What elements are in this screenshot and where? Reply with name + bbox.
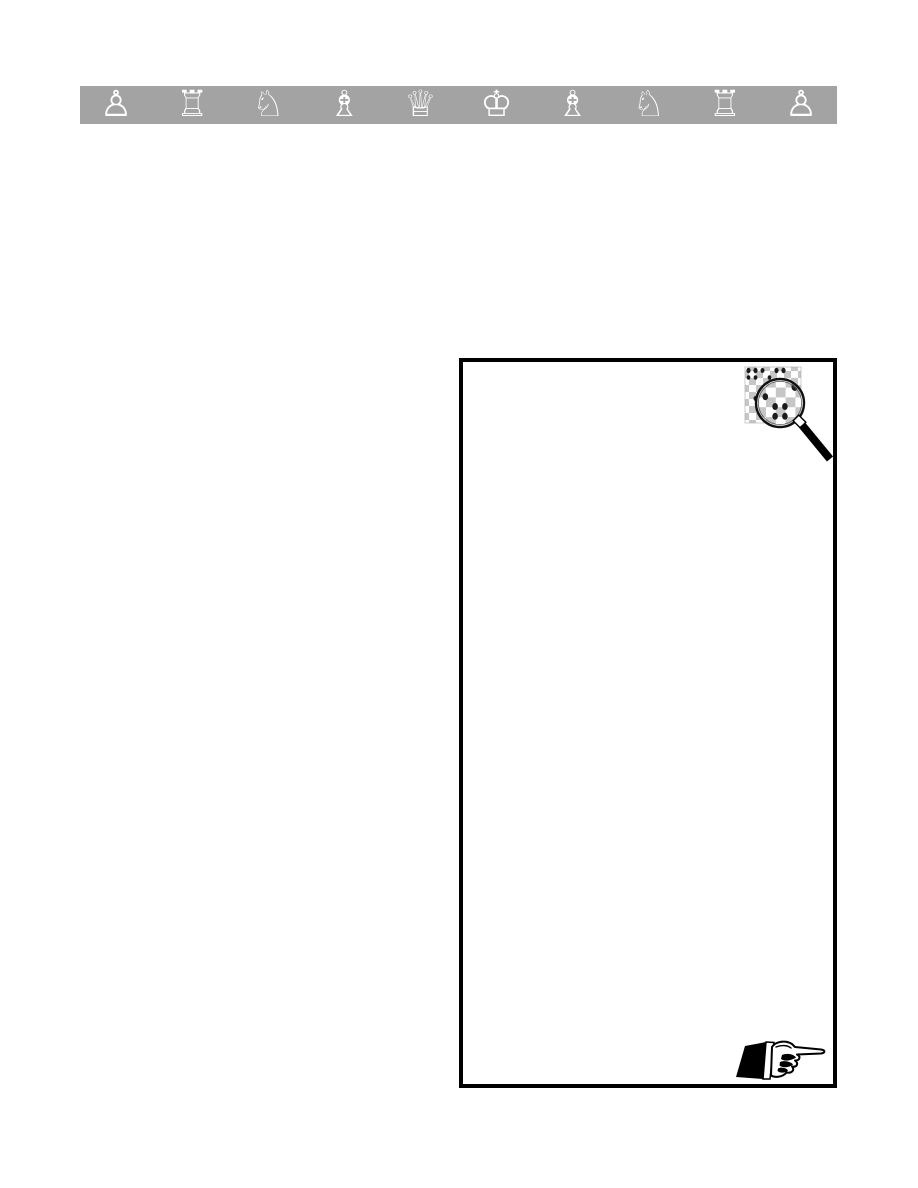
white-knight-icon: ♘ (627, 86, 671, 124)
white-pawn-icon: ♙ (779, 86, 823, 124)
pointing-hand-icon (735, 1036, 829, 1080)
white-pawn-icon: ♙ (94, 86, 138, 124)
white-knight-icon: ♘ (246, 86, 290, 124)
white-rook-icon: ♖ (170, 86, 214, 124)
white-queen-icon: ♕ (398, 86, 442, 124)
white-bishop-icon: ♗ (322, 86, 366, 124)
white-bishop-icon: ♗ (551, 86, 595, 124)
white-king-icon: ♔ (475, 86, 519, 124)
content-box (459, 358, 837, 1088)
chess-pieces-banner: ♙ ♖ ♘ ♗ ♕ ♔ ♗ ♘ ♖ ♙ (80, 86, 837, 124)
white-rook-icon: ♖ (703, 86, 747, 124)
magnifier-chessboard-icon (741, 363, 841, 467)
document-page: ♙ ♖ ♘ ♗ ♕ ♔ ♗ ♘ ♖ ♙ (0, 0, 918, 1188)
